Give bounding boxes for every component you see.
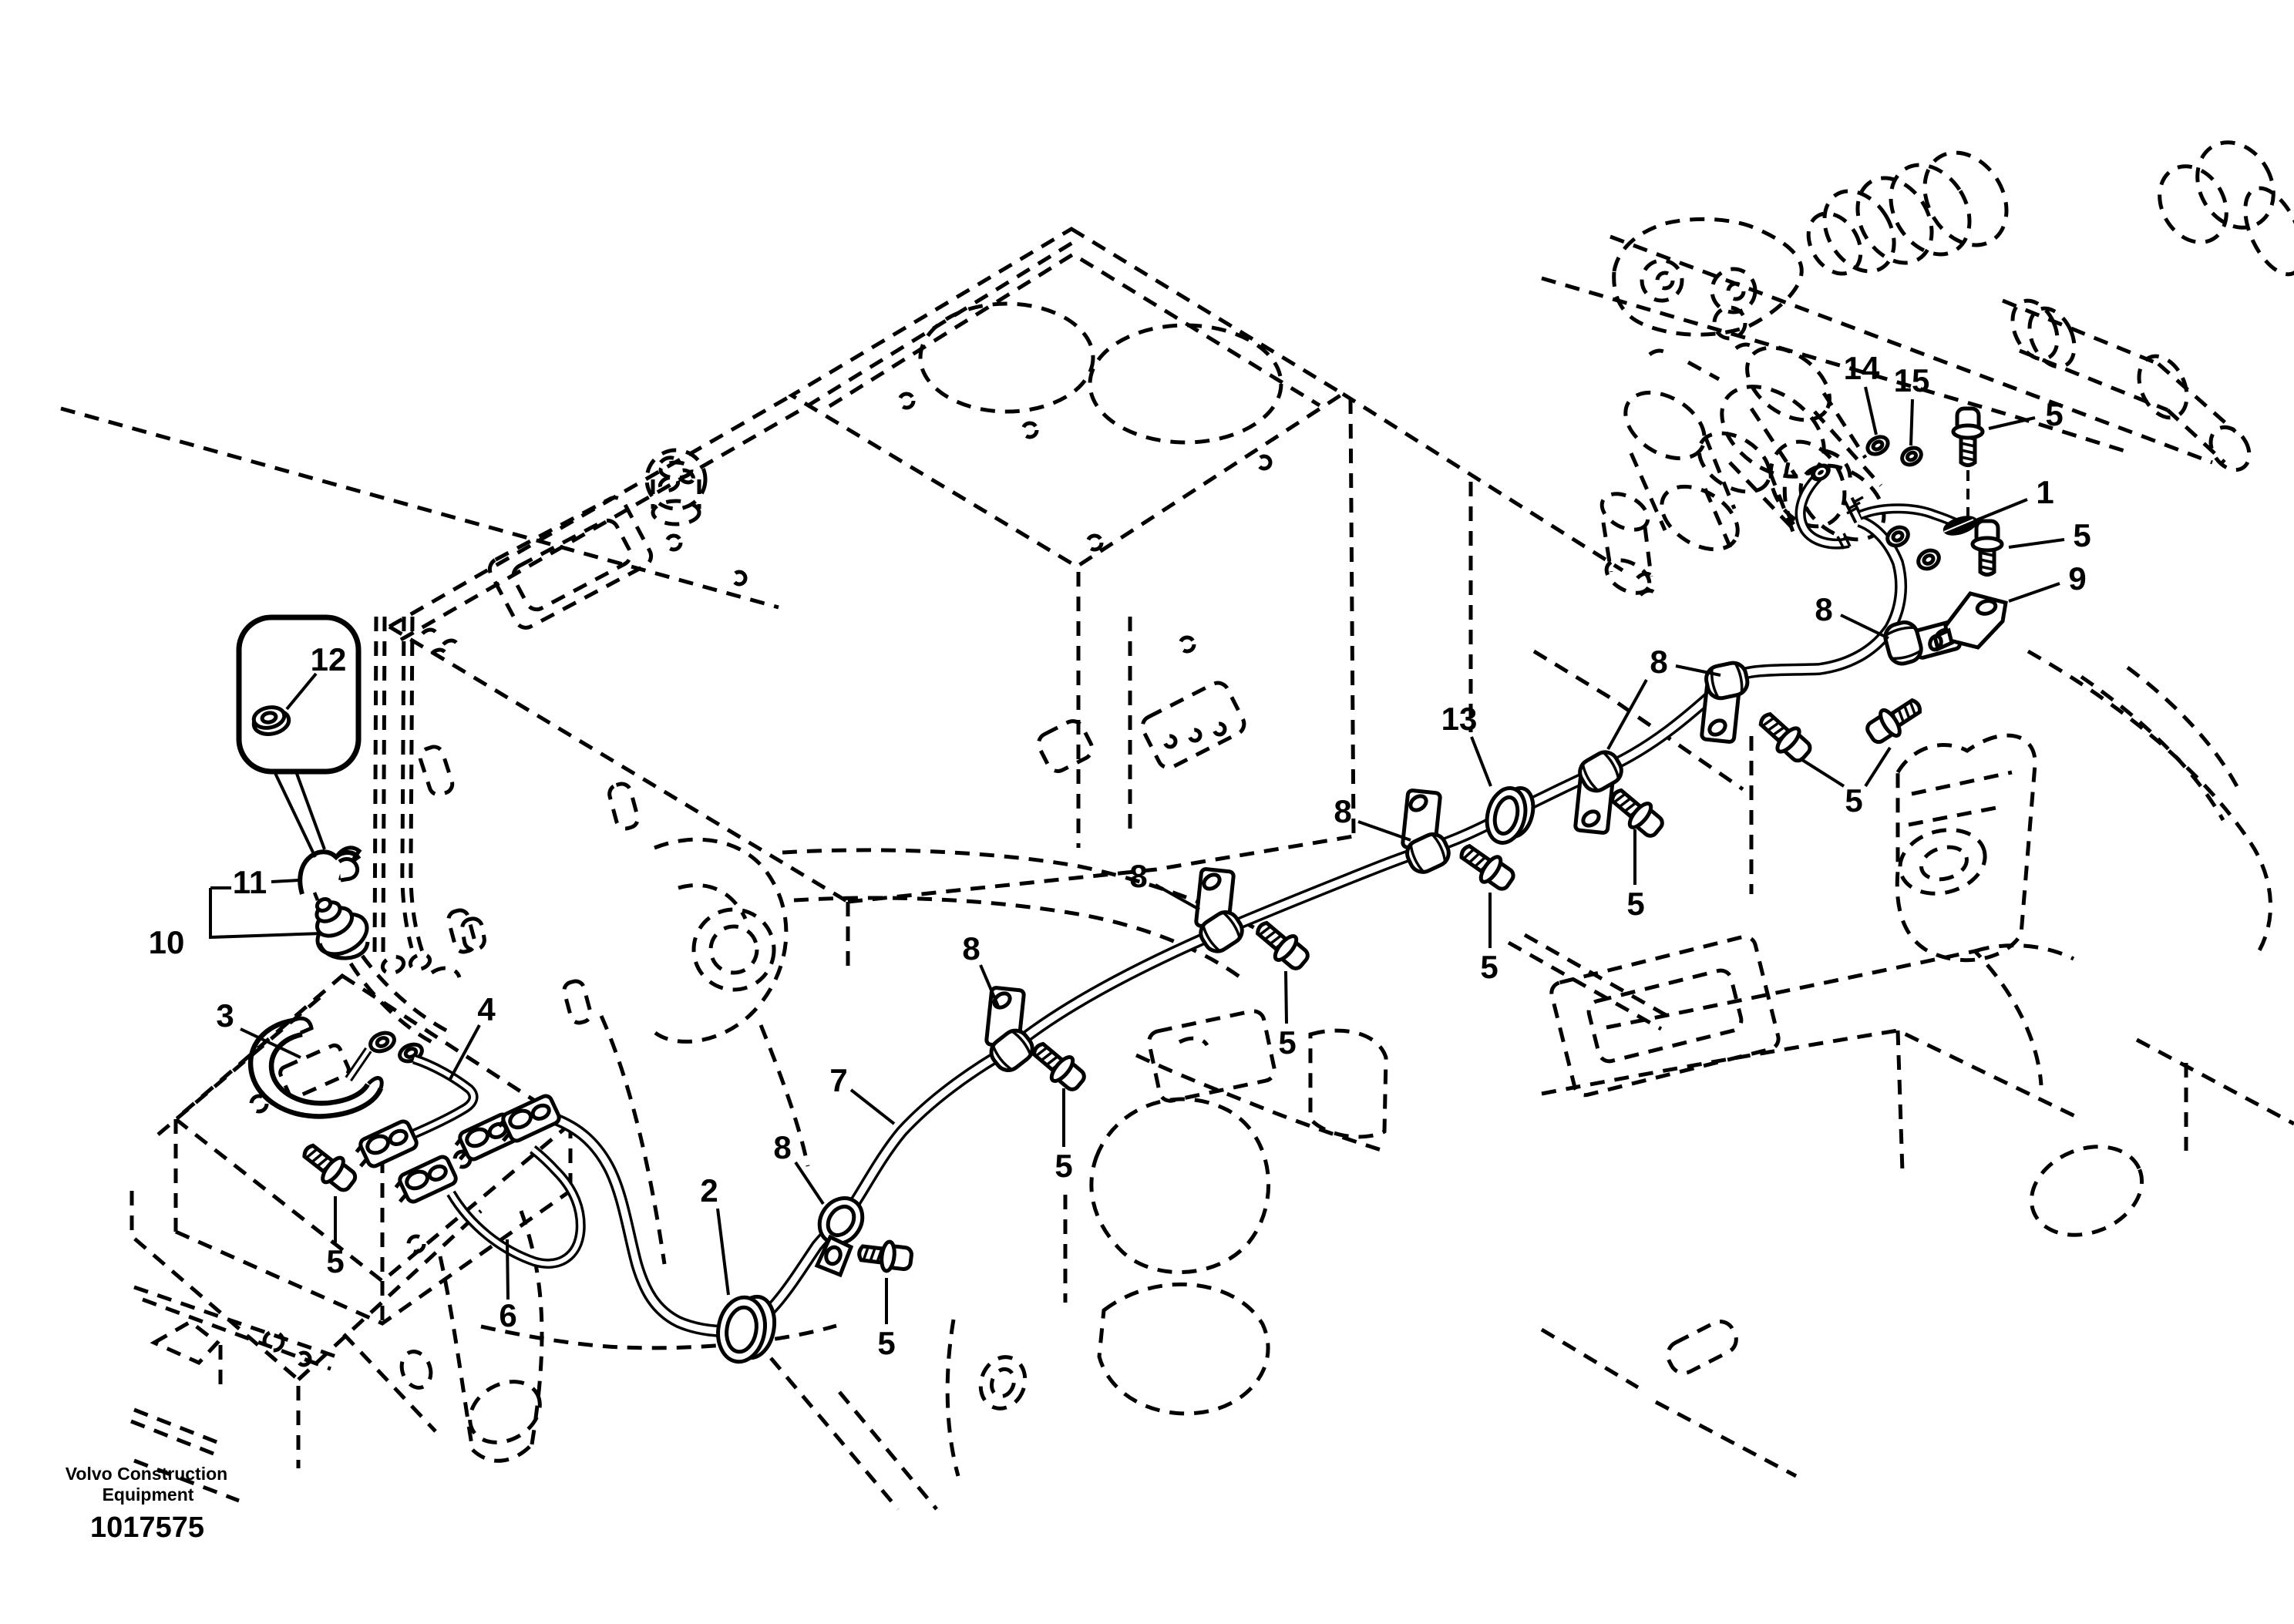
svg-text:8: 8 (962, 930, 980, 967)
svg-text:10: 10 (149, 924, 185, 960)
svg-text:5: 5 (1054, 1148, 1072, 1184)
svg-text:6: 6 (499, 1297, 516, 1333)
svg-text:5: 5 (1278, 1024, 1296, 1061)
svg-text:3: 3 (216, 997, 234, 1034)
svg-text:2: 2 (700, 1172, 718, 1209)
svg-text:9: 9 (2068, 560, 2086, 597)
svg-text:1: 1 (2036, 474, 2053, 510)
svg-text:Equipment: Equipment (103, 1484, 194, 1505)
svg-text:Volvo Construction: Volvo Construction (66, 1464, 227, 1484)
svg-text:14: 14 (1844, 350, 1880, 386)
svg-text:8: 8 (1129, 858, 1147, 894)
svg-text:5: 5 (326, 1243, 344, 1279)
svg-text:11: 11 (233, 864, 267, 900)
svg-text:8: 8 (1650, 644, 1667, 680)
svg-text:8: 8 (1815, 591, 1832, 627)
svg-text:4: 4 (477, 991, 496, 1027)
svg-text:5: 5 (2073, 517, 2090, 553)
svg-text:15: 15 (1894, 362, 1930, 398)
svg-text:8: 8 (1334, 793, 1351, 829)
svg-text:5: 5 (1845, 782, 1862, 819)
svg-text:7: 7 (829, 1062, 847, 1098)
svg-text:5: 5 (2045, 396, 2063, 432)
svg-text:8: 8 (773, 1129, 791, 1165)
svg-text:5: 5 (877, 1325, 895, 1361)
svg-text:5: 5 (1626, 886, 1644, 922)
svg-text:1017575: 1017575 (90, 1511, 204, 1544)
svg-text:5: 5 (1480, 949, 1498, 985)
svg-text:13: 13 (1441, 701, 1478, 737)
svg-text:12: 12 (311, 641, 347, 678)
